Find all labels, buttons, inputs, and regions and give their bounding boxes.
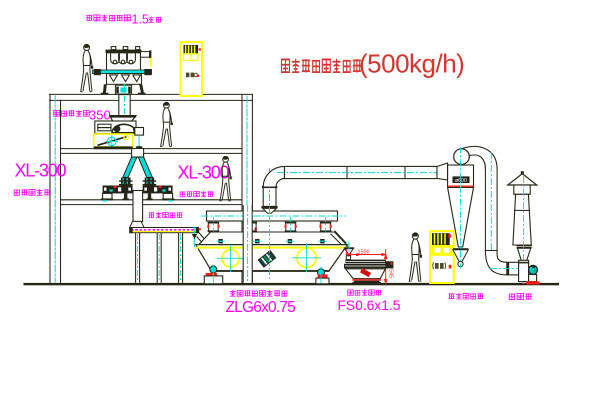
svg-text:1.5: 1.5 <box>132 13 149 27</box>
svg-text:545: 545 <box>388 269 394 278</box>
svg-text:350: 350 <box>89 108 111 123</box>
svg-text:1500: 1500 <box>358 249 370 255</box>
svg-text:FS0.6x1.5: FS0.6x1.5 <box>338 298 401 313</box>
svg-text:XL-300: XL-300 <box>15 161 67 181</box>
svg-text:XL-300: XL-300 <box>178 163 230 183</box>
svg-text:(500kg/h): (500kg/h) <box>359 49 464 79</box>
svg-text:ø600: ø600 <box>455 178 467 184</box>
svg-text:ZLG6x0.75: ZLG6x0.75 <box>226 299 296 316</box>
